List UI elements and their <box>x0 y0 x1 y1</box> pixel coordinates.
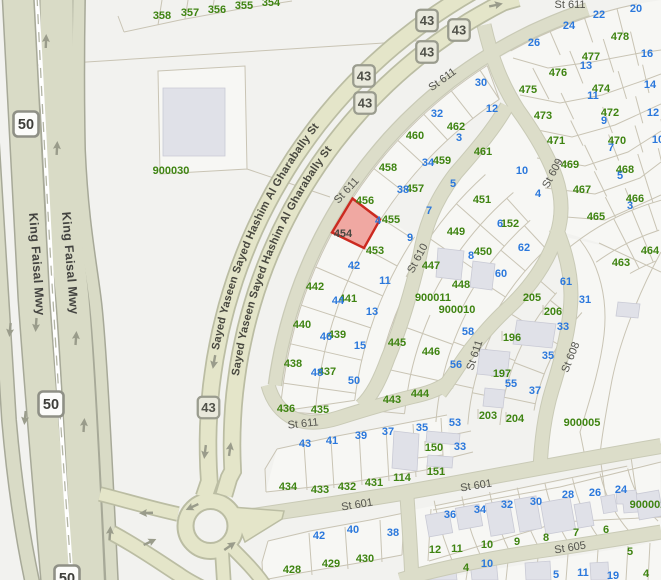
svg-text:453: 453 <box>366 245 384 257</box>
svg-text:48: 48 <box>311 367 323 379</box>
svg-text:8: 8 <box>468 250 474 262</box>
svg-text:206: 206 <box>544 306 562 318</box>
svg-text:5: 5 <box>617 170 623 182</box>
svg-text:11: 11 <box>587 90 599 102</box>
svg-text:459: 459 <box>433 155 451 167</box>
svg-text:152: 152 <box>501 218 519 230</box>
svg-text:428: 428 <box>283 564 301 576</box>
svg-text:442: 442 <box>306 281 324 293</box>
svg-text:431: 431 <box>365 477 383 489</box>
svg-text:42: 42 <box>348 260 360 272</box>
svg-text:475: 475 <box>519 84 537 96</box>
svg-text:39: 39 <box>355 430 367 442</box>
svg-text:4: 4 <box>375 215 382 227</box>
svg-text:36: 36 <box>444 509 456 521</box>
svg-text:38: 38 <box>397 184 409 196</box>
svg-text:429: 429 <box>322 558 340 570</box>
svg-text:469: 469 <box>561 159 579 171</box>
svg-text:444: 444 <box>411 388 430 400</box>
svg-text:463: 463 <box>612 257 630 269</box>
svg-text:434: 434 <box>279 481 298 493</box>
svg-text:900002: 900002 <box>630 499 661 511</box>
svg-text:33: 33 <box>454 441 466 453</box>
svg-text:62: 62 <box>518 242 530 254</box>
svg-text:12: 12 <box>647 107 659 119</box>
svg-text:355: 355 <box>235 0 253 12</box>
svg-text:203: 203 <box>479 410 497 422</box>
svg-text:451: 451 <box>473 194 491 206</box>
svg-text:56: 56 <box>450 359 462 371</box>
svg-text:28: 28 <box>562 489 574 501</box>
svg-text:196: 196 <box>503 332 521 344</box>
svg-text:32: 32 <box>501 499 513 511</box>
svg-text:40: 40 <box>347 524 359 536</box>
svg-text:456: 456 <box>356 195 374 207</box>
svg-text:3: 3 <box>627 200 633 212</box>
svg-text:11: 11 <box>451 543 463 555</box>
svg-text:9: 9 <box>601 115 607 127</box>
svg-text:35: 35 <box>416 422 428 434</box>
svg-text:22: 22 <box>593 9 605 21</box>
svg-text:55: 55 <box>505 378 517 390</box>
svg-text:43: 43 <box>201 400 215 415</box>
svg-text:465: 465 <box>587 211 605 223</box>
svg-text:43: 43 <box>420 45 434 60</box>
svg-text:454: 454 <box>334 228 353 240</box>
svg-text:900030: 900030 <box>153 165 190 177</box>
svg-text:450: 450 <box>474 246 492 258</box>
svg-text:5: 5 <box>450 178 456 190</box>
svg-text:43: 43 <box>299 438 311 450</box>
svg-text:471: 471 <box>547 135 565 147</box>
svg-text:24: 24 <box>615 484 628 496</box>
svg-text:13: 13 <box>366 306 378 318</box>
svg-text:38: 38 <box>387 527 399 539</box>
svg-text:151: 151 <box>427 466 445 478</box>
svg-text:43: 43 <box>358 96 372 111</box>
svg-text:430: 430 <box>356 553 374 565</box>
svg-text:4: 4 <box>643 568 650 580</box>
svg-text:15: 15 <box>354 340 366 352</box>
svg-text:26: 26 <box>589 487 601 499</box>
svg-text:460: 460 <box>406 130 424 142</box>
svg-text:356: 356 <box>208 4 226 16</box>
svg-text:26: 26 <box>528 37 540 49</box>
svg-text:436: 436 <box>277 403 295 415</box>
svg-text:9: 9 <box>514 536 520 548</box>
svg-text:446: 446 <box>422 346 440 358</box>
svg-text:35: 35 <box>542 350 554 362</box>
svg-text:50: 50 <box>43 397 59 413</box>
svg-text:31: 31 <box>579 294 591 306</box>
svg-text:443: 443 <box>383 394 401 406</box>
svg-text:12: 12 <box>429 544 441 556</box>
svg-text:204: 204 <box>506 413 525 425</box>
svg-text:114: 114 <box>393 472 412 484</box>
svg-text:464: 464 <box>641 245 660 257</box>
svg-text:42: 42 <box>313 530 325 542</box>
svg-text:358: 358 <box>153 10 171 22</box>
svg-text:473: 473 <box>534 110 552 122</box>
svg-text:34: 34 <box>422 157 435 169</box>
svg-text:30: 30 <box>475 77 487 89</box>
svg-text:34: 34 <box>474 504 487 516</box>
svg-text:7: 7 <box>608 142 614 154</box>
svg-text:43: 43 <box>452 23 466 38</box>
svg-text:7: 7 <box>426 205 432 217</box>
svg-text:61: 61 <box>560 276 572 288</box>
svg-text:10: 10 <box>652 134 661 146</box>
svg-text:10: 10 <box>516 165 528 177</box>
svg-text:53: 53 <box>449 417 461 429</box>
svg-text:900005: 900005 <box>564 417 601 429</box>
svg-text:3: 3 <box>456 132 462 144</box>
svg-text:50: 50 <box>348 375 360 387</box>
svg-text:19: 19 <box>607 570 619 580</box>
svg-text:440: 440 <box>293 319 311 331</box>
svg-text:354: 354 <box>262 0 281 9</box>
svg-text:6: 6 <box>603 524 609 536</box>
svg-text:11: 11 <box>577 567 589 579</box>
svg-text:9: 9 <box>407 232 413 244</box>
svg-text:43: 43 <box>420 13 434 28</box>
svg-text:435: 435 <box>311 404 329 416</box>
svg-text:43: 43 <box>357 69 371 84</box>
svg-text:50: 50 <box>59 571 75 580</box>
svg-text:37: 37 <box>382 426 394 438</box>
svg-text:11: 11 <box>379 275 391 287</box>
svg-text:37: 37 <box>529 385 541 397</box>
svg-text:16: 16 <box>641 48 653 60</box>
svg-text:12: 12 <box>486 103 498 115</box>
svg-text:455: 455 <box>382 214 400 226</box>
svg-text:449: 449 <box>447 226 465 238</box>
svg-text:58: 58 <box>462 326 474 338</box>
svg-text:900011: 900011 <box>415 292 451 304</box>
svg-text:467: 467 <box>573 184 591 196</box>
svg-text:478: 478 <box>611 31 629 43</box>
svg-text:13: 13 <box>580 60 592 72</box>
svg-text:448: 448 <box>452 279 470 291</box>
svg-text:445: 445 <box>388 337 406 349</box>
svg-text:24: 24 <box>563 20 576 32</box>
svg-text:10: 10 <box>481 539 493 551</box>
svg-text:461: 461 <box>474 146 492 158</box>
svg-text:433: 433 <box>311 484 329 496</box>
svg-text:32: 32 <box>431 108 443 120</box>
svg-text:438: 438 <box>284 358 302 370</box>
svg-text:50: 50 <box>18 117 34 133</box>
svg-text:33: 33 <box>557 321 569 333</box>
svg-text:8: 8 <box>543 532 549 544</box>
svg-text:30: 30 <box>530 496 542 508</box>
svg-text:357: 357 <box>181 7 199 19</box>
svg-text:476: 476 <box>549 67 567 79</box>
svg-text:46: 46 <box>320 331 332 343</box>
svg-text:St 611: St 611 <box>555 0 586 11</box>
svg-text:41: 41 <box>326 435 338 447</box>
svg-text:458: 458 <box>379 162 397 174</box>
svg-text:150: 150 <box>425 442 443 454</box>
svg-text:5: 5 <box>627 546 633 558</box>
svg-text:432: 432 <box>338 481 356 493</box>
svg-text:900010: 900010 <box>439 304 476 316</box>
svg-text:5: 5 <box>553 569 559 580</box>
svg-text:20: 20 <box>630 3 642 15</box>
svg-text:4: 4 <box>535 188 542 200</box>
svg-text:60: 60 <box>495 268 507 280</box>
svg-text:447: 447 <box>422 260 440 272</box>
svg-text:205: 205 <box>523 292 541 304</box>
svg-text:10: 10 <box>481 558 493 570</box>
svg-text:44: 44 <box>332 295 345 307</box>
svg-text:6: 6 <box>497 218 503 230</box>
svg-text:4: 4 <box>463 562 470 574</box>
svg-text:7: 7 <box>573 527 579 539</box>
svg-text:14: 14 <box>644 79 657 91</box>
